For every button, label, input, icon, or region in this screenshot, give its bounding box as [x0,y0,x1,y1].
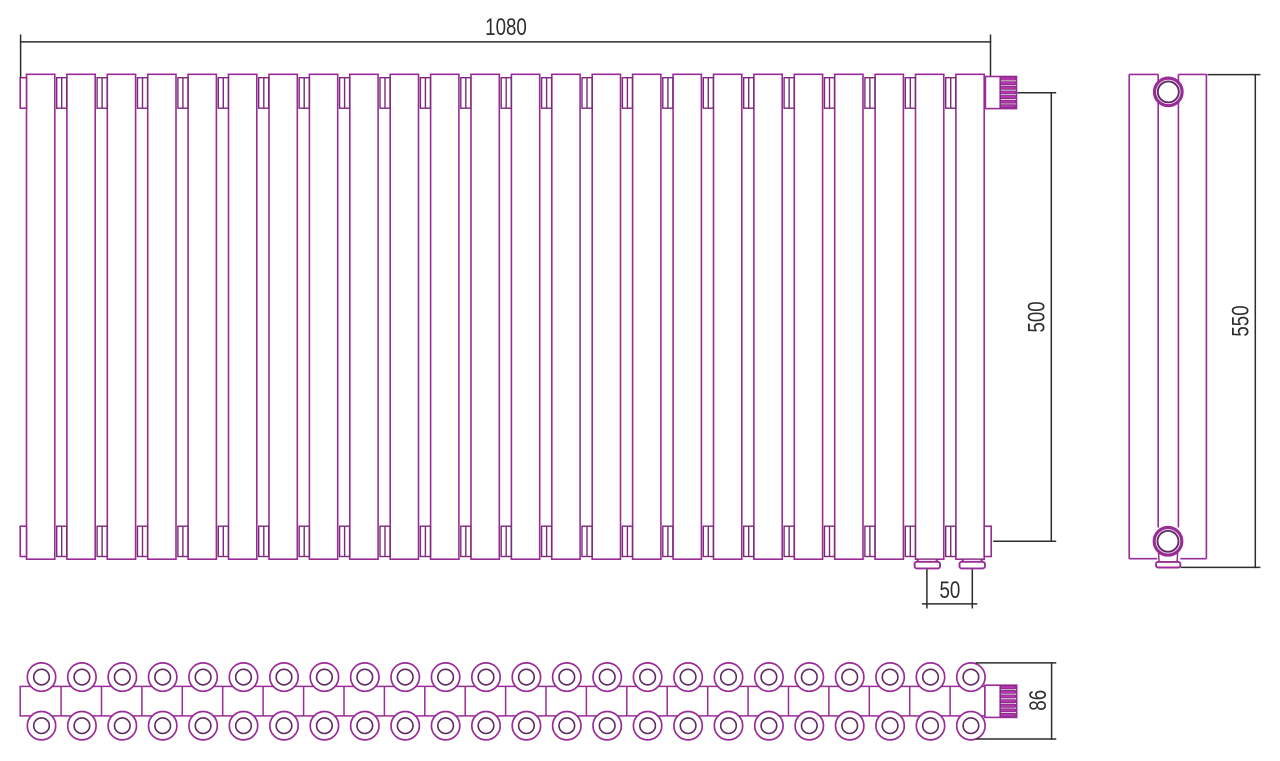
svg-text:50: 50 [939,577,960,604]
svg-text:1080: 1080 [485,14,527,41]
svg-text:500: 500 [1024,301,1051,332]
svg-text:86: 86 [1025,690,1052,711]
svg-text:550: 550 [1228,305,1255,336]
